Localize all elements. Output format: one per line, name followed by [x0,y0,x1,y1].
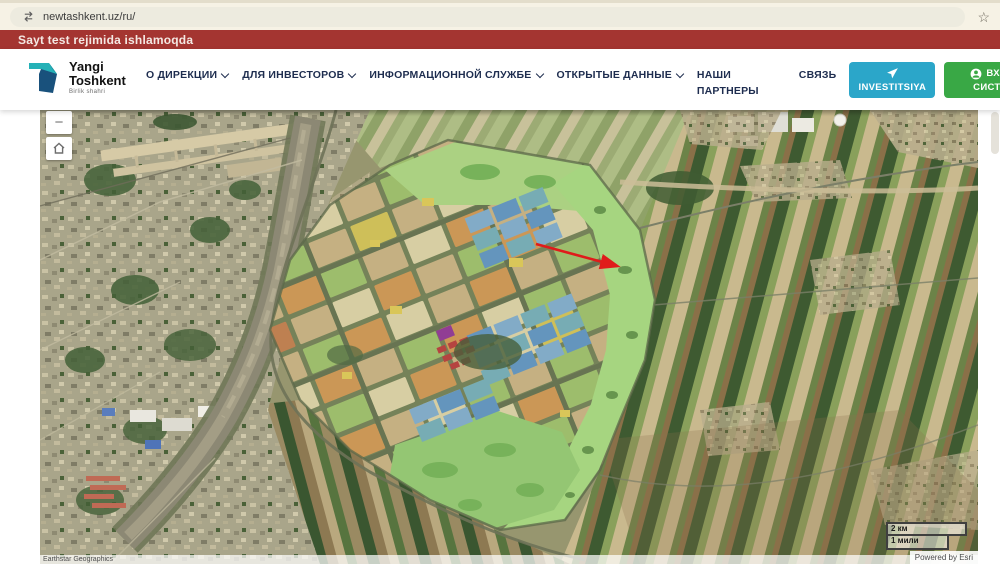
login-label-line2: СИСТЕМУ [973,82,1000,93]
map[interactable]: − 2 км 1 мили Earthstar Geographics Powe… [40,110,978,564]
nav-contact[interactable]: СВЯЗЬ [799,68,837,100]
test-mode-banner: Sayt test rejimida ishlamoqda [0,30,1000,49]
scale-bar: 2 км 1 мили [886,522,967,550]
logo-text: Yangi Toshkent Birlik shahri [69,60,126,96]
nav-spacer [774,68,785,100]
esri-attribution: Powered by Esri [910,551,978,564]
zoom-out-button[interactable]: − [46,111,72,134]
address-bar[interactable]: newtashkent.uz/ru/ [10,7,965,27]
nav-partners[interactable]: НАШИ ПАРТНЕРЫ [697,68,760,100]
page-scrollbar-thumb[interactable] [991,112,999,154]
logo-icon [28,60,62,96]
paper-plane-icon [886,67,899,80]
login-label-line1: ВХОД В [986,68,1000,79]
site-header: Yangi Toshkent Birlik shahri О ДИРЕКЦИИ … [0,49,1000,110]
logo-line2: Toshkent [69,74,126,88]
map-controls: − [46,111,72,160]
url-text[interactable]: newtashkent.uz/ru/ [43,11,135,23]
header-buttons: INVESTITSIYA ВХОД В СИСТЕМУ [849,62,1000,98]
map-canvas[interactable] [40,110,978,564]
chevron-down-icon [221,70,229,78]
investitsiya-button[interactable]: INVESTITSIYA [849,62,935,98]
screen: newtashkent.uz/ru/ ☆ Sayt test rejimida … [0,0,1000,564]
tab-switch-icon [22,10,35,23]
home-icon [52,142,66,155]
chevron-down-icon [535,70,543,78]
main-nav: О ДИРЕКЦИИ ДЛЯ ИНВЕСТОРОВ ИНФОРМАЦИОННОЙ… [146,68,836,100]
scale-miles: 1 мили [886,536,949,550]
chevron-down-icon [348,70,356,78]
nav-open-data[interactable]: ОТКРЫТЫЕ ДАННЫЕ [557,68,683,100]
nav-directorate[interactable]: О ДИРЕКЦИИ [146,68,228,100]
scale-km: 2 км [886,522,967,536]
login-button[interactable]: ВХОД В СИСТЕМУ [944,62,1000,98]
chevron-down-icon [676,70,684,78]
banner-text: Sayt test rejimida ishlamoqda [18,33,193,47]
logo-tagline: Birlik shahri [69,89,126,95]
investitsiya-label: INVESTITSIYA [859,82,927,93]
home-button[interactable] [46,137,72,160]
map-attribution: Earthstar Geographics [40,555,978,564]
bookmark-star-icon[interactable]: ☆ [977,10,990,24]
nav-press-service[interactable]: ИНФОРМАЦИОННОЙ СЛУЖБЕ [369,68,542,100]
minus-icon: − [55,114,64,131]
browser-chrome: newtashkent.uz/ru/ ☆ [0,0,1000,30]
logo-line1: Yangi [69,60,126,74]
user-icon [970,68,982,80]
nav-investors[interactable]: ДЛЯ ИНВЕСТОРОВ [242,68,355,100]
site-logo[interactable]: Yangi Toshkent Birlik shahri [28,60,130,96]
